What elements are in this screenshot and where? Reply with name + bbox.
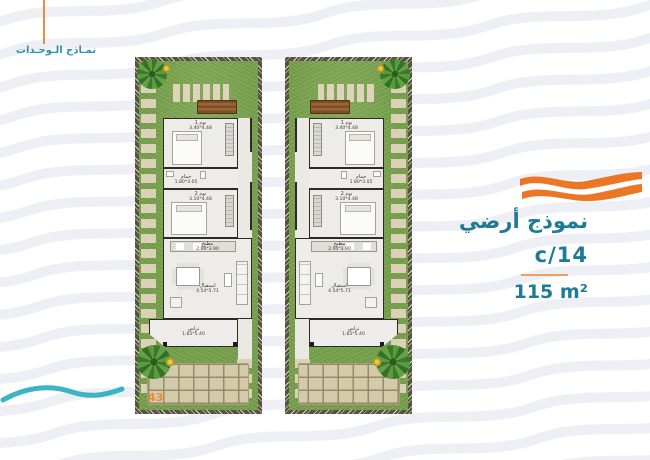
- garden-bench: [197, 100, 237, 114]
- bathroom-label: حمام 1.80*3.05: [339, 174, 383, 186]
- shrub-icon: [372, 357, 382, 367]
- bedroom-1-label: نوم 1 3.40*4.48: [310, 120, 383, 132]
- reception-label: استقبال 4.54*5.71: [164, 283, 251, 295]
- palm-tree-icon: [137, 59, 167, 89]
- garden-bench: [310, 100, 350, 114]
- kitchen-label: مطبخ 2.00*3.90: [164, 241, 251, 253]
- info-divider: [521, 274, 568, 276]
- bedroom-2-label: نوم 2 3.10*4.48: [310, 191, 383, 203]
- bed-icon: [340, 202, 376, 235]
- bedroom-2: نوم 2 3.10*4.48: [309, 189, 384, 238]
- armchair-icon: [365, 297, 377, 308]
- hallway: [208, 168, 238, 189]
- hallway: [309, 168, 339, 189]
- bed-icon: [171, 202, 207, 235]
- armchair-icon: [170, 297, 182, 308]
- room-dimensions: 3.10*4.48: [164, 197, 237, 203]
- shrub-icon: [376, 64, 385, 73]
- terrace-label: تراس 1.65*5.40: [310, 326, 397, 338]
- section-accent-line: [43, 0, 45, 44]
- bed-icon: [172, 131, 202, 165]
- bathroom: حمام 1.80*3.05: [338, 168, 384, 189]
- palm-tree-icon: [380, 59, 410, 89]
- shrub-icon: [162, 64, 171, 73]
- bathroom: حمام 1.80*3.05: [163, 168, 209, 189]
- reception: مطبخ 2.00*3.90 استقبال 4.54*5.71: [163, 238, 252, 319]
- entry-walkway: [238, 118, 252, 238]
- terrace: تراس 1.65*5.40: [149, 319, 238, 347]
- terrace: تراس 1.65*5.40: [309, 319, 398, 347]
- terrace-walkway: [238, 319, 252, 359]
- entry-walkway: [295, 118, 309, 238]
- room-dimensions: 1.65*5.40: [150, 332, 237, 338]
- room-dimensions: 3.40*4.48: [164, 126, 237, 132]
- room-dimensions: 3.40*4.48: [310, 126, 383, 132]
- page-number: 43: [148, 391, 163, 404]
- room-dimensions: 4.54*5.71: [296, 289, 383, 295]
- room-dimensions: 2.00*3.90: [164, 247, 251, 253]
- room-dimensions: 2.00*3.90: [296, 247, 383, 253]
- bathroom-label: حمام 1.80*3.05: [164, 174, 208, 186]
- section-title: نمـاذج الـوحـدات: [6, 45, 106, 56]
- bed-icon: [345, 131, 375, 165]
- bedroom-1: نوم 1 3.40*4.48: [163, 118, 238, 168]
- plan-code: c/14: [430, 243, 588, 267]
- plan-area: 115 m²: [430, 281, 588, 303]
- room-dimensions: 4.54*5.71: [164, 289, 251, 295]
- kitchen-label: مطبخ 2.00*3.90: [296, 241, 383, 253]
- room-dimensions: 1.65*5.40: [310, 332, 397, 338]
- terrace-label: تراس 1.65*5.40: [150, 326, 237, 338]
- floor-plan-left: نوم 1 3.40*4.48 حمام 1.80*3.05 نوم 2 3.1…: [135, 57, 262, 414]
- room-dimensions: 3.10*4.48: [310, 197, 383, 203]
- footer-wave-icon: [0, 380, 128, 408]
- plan-info-panel: نموذج أرضي c/14 115 m²: [430, 209, 588, 303]
- terrace-walkway: [295, 319, 309, 359]
- brand-wave-logo-icon: [520, 170, 642, 206]
- bedroom-2-label: نوم 2 3.10*4.48: [164, 191, 237, 203]
- bedroom-2: نوم 2 3.10*4.48: [163, 189, 238, 238]
- floor-plan-right: نوم 1 3.40*4.48 حمام 1.80*3.05 نوم 2 3.1…: [285, 57, 412, 414]
- reception-label: استقبال 4.54*5.71: [296, 283, 383, 295]
- room-dimensions: 1.80*3.05: [164, 180, 208, 186]
- shrub-icon: [165, 357, 175, 367]
- room-dimensions: 1.80*3.05: [339, 180, 383, 186]
- plan-title: نموذج أرضي: [430, 209, 588, 234]
- bedroom-1-label: نوم 1 3.40*4.48: [164, 120, 237, 132]
- bedroom-1: نوم 1 3.40*4.48: [309, 118, 384, 168]
- reception: مطبخ 2.00*3.90 استقبال 4.54*5.71: [295, 238, 384, 319]
